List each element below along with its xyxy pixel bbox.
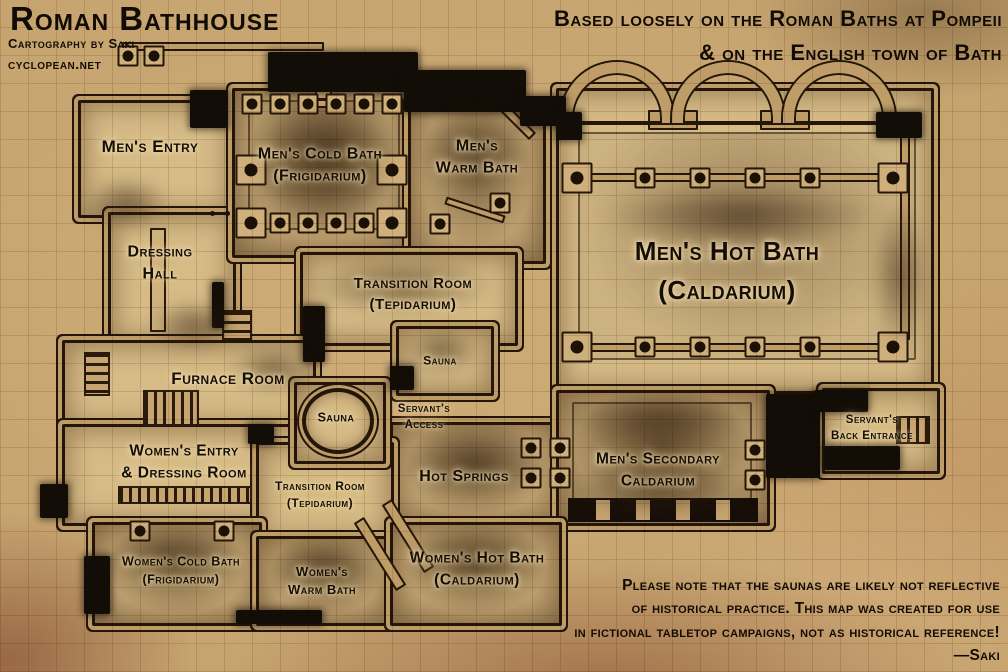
- column: [354, 213, 375, 234]
- stairs-left-edge: [84, 352, 110, 396]
- void-shadow: [814, 390, 868, 412]
- stairs-corridor: [222, 310, 252, 340]
- column: [326, 213, 347, 234]
- colonnade-wall-top: [585, 173, 901, 182]
- column: [521, 438, 542, 459]
- door-handle: [210, 211, 215, 216]
- void-shadow: [766, 394, 820, 478]
- column: [521, 468, 542, 489]
- room-label-sauna-upper: Sauna: [423, 353, 457, 370]
- door-handle: [225, 211, 230, 216]
- void-shadow: [236, 610, 322, 624]
- column: [550, 468, 571, 489]
- void-shadow: [556, 112, 582, 140]
- column: [326, 94, 347, 115]
- note-line-1: Please note that the saunas are likely n…: [574, 574, 1000, 597]
- column: [745, 470, 766, 491]
- void-shadow: [404, 70, 526, 112]
- bathhouse-map: Roman Bathhouse Cartography by Saki cycl…: [0, 0, 1008, 672]
- void-shadow: [84, 556, 110, 614]
- void-shadow: [248, 424, 274, 444]
- column: [800, 168, 821, 189]
- column: [382, 94, 403, 115]
- room-label-transition-womens: Transition Room (Tepidarium): [275, 478, 365, 512]
- void-shadow: [824, 446, 900, 470]
- column: [635, 168, 656, 189]
- crenellated-wall: [568, 498, 758, 522]
- column: [745, 168, 766, 189]
- room-label-mens-entry: Men's Entry: [102, 135, 199, 159]
- column: [550, 438, 571, 459]
- column: [144, 46, 165, 67]
- large-column: [377, 208, 408, 239]
- room-label-mens-hot-bath: Men's Hot Bath (Caldarium): [635, 232, 820, 310]
- column: [298, 213, 319, 234]
- large-column: [878, 332, 909, 363]
- room-label-servants-back: Servant's Back Entrance: [831, 412, 913, 444]
- void-shadow: [190, 90, 228, 128]
- void-shadow: [40, 484, 68, 518]
- room-label-dressing-hall: Dressing Hall: [127, 242, 192, 287]
- large-column: [562, 163, 593, 194]
- colonnade-wall-bottom: [585, 343, 901, 352]
- subtitle-line-1: Based loosely on the Roman Baths at Pomp…: [554, 6, 1002, 32]
- subtitle-line-2: & on the English town of Bath: [699, 40, 1002, 66]
- column: [690, 337, 711, 358]
- void-shadow: [212, 282, 224, 328]
- room-label-mens-cold-bath: Men's Cold Bath (Frigidarium): [258, 144, 382, 189]
- room-label-furnace: Furnace Room: [171, 367, 284, 391]
- column: [490, 193, 511, 214]
- map-disclaimer-note: Please note that the saunas are likely n…: [574, 574, 1000, 667]
- room-label-hot-springs: Hot Springs: [419, 466, 509, 488]
- void-shadow: [268, 52, 418, 92]
- room-label-sauna-round: Sauna: [318, 409, 355, 427]
- room-label-secondary-caldarium: Men's Secondary Caldarium: [596, 448, 720, 491]
- column: [745, 440, 766, 461]
- room-label-transition-mens: Transition Room (Tepidarium): [354, 273, 472, 315]
- column: [635, 337, 656, 358]
- column: [214, 521, 235, 542]
- column: [270, 213, 291, 234]
- column: [242, 94, 263, 115]
- column: [690, 168, 711, 189]
- large-column: [878, 163, 909, 194]
- column: [270, 94, 291, 115]
- column: [130, 521, 151, 542]
- room-label-womens-cold-bath: Women's Cold Bath (Frigidarium): [122, 554, 240, 589]
- room-label-servants-access: Servant's Access: [398, 401, 450, 433]
- column: [298, 94, 319, 115]
- furnace-grate: [143, 390, 199, 426]
- void-shadow: [390, 366, 414, 390]
- column: [354, 94, 375, 115]
- note-line-2: of historical practice. This map was cre…: [574, 597, 1000, 620]
- large-column: [562, 332, 593, 363]
- void-shadow: [303, 306, 325, 362]
- room-label-womens-entry: Women's Entry & Dressing Room: [121, 440, 246, 483]
- map-title: Roman Bathhouse: [10, 0, 279, 38]
- arch-alcove-2: [672, 62, 784, 123]
- room-label-mens-warm-bath: Men's Warm Bath: [436, 136, 518, 181]
- womens-entry-lockers: [118, 486, 252, 504]
- room-label-womens-warm-bath: Women's Warm Bath: [288, 563, 356, 599]
- large-column: [236, 208, 267, 239]
- note-line-3: in fictional tabletop campaigns, not as …: [574, 621, 1000, 644]
- column: [800, 337, 821, 358]
- room-label-womens-hot-bath: Women's Hot Bath (Caldarium): [410, 547, 545, 590]
- column: [430, 214, 451, 235]
- note-signature: —Saki: [574, 644, 1000, 667]
- cartographer-credit: Cartography by Saki: [8, 36, 135, 51]
- website-credit: cyclopean.net: [8, 56, 101, 72]
- void-shadow: [876, 112, 922, 138]
- column: [745, 337, 766, 358]
